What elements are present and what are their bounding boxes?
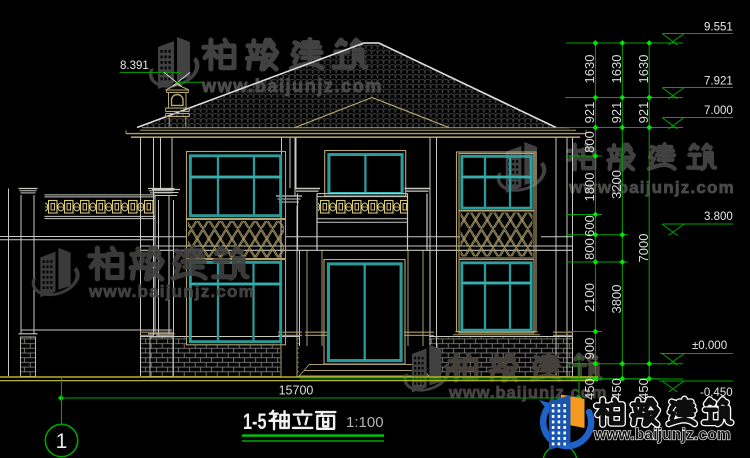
svg-text:1630: 1630 [582, 55, 597, 84]
svg-text:800: 800 [582, 131, 597, 153]
svg-text:921: 921 [636, 102, 651, 124]
svg-text:2100: 2100 [582, 283, 597, 312]
svg-text:1630: 1630 [609, 55, 624, 84]
svg-text:±0.000: ±0.000 [692, 340, 727, 352]
svg-text:15700: 15700 [279, 384, 314, 398]
svg-text:7000: 7000 [636, 234, 651, 263]
svg-text:900: 900 [582, 338, 597, 360]
svg-text:3200: 3200 [609, 170, 624, 199]
svg-text:8.391: 8.391 [120, 60, 149, 72]
svg-text:800: 800 [582, 238, 597, 260]
svg-text:9.551: 9.551 [704, 22, 733, 34]
svg-text:1-5: 1-5 [243, 409, 267, 434]
svg-text:1800: 1800 [582, 173, 597, 202]
svg-text:600: 600 [582, 215, 597, 237]
svg-text:3800: 3800 [609, 285, 624, 314]
svg-text:www.baijunjz.com: www.baijunjz.com [88, 282, 255, 301]
svg-text:1:100: 1:100 [346, 414, 384, 431]
svg-text:921: 921 [609, 102, 624, 124]
svg-text:-0.450: -0.450 [700, 387, 733, 399]
svg-text:1: 1 [56, 430, 68, 453]
svg-text:www.baijunjz.com: www.baijunjz.com [593, 427, 731, 444]
svg-text:7.000: 7.000 [704, 105, 733, 117]
svg-text:1630: 1630 [636, 55, 651, 84]
svg-text:921: 921 [582, 102, 597, 124]
svg-text:450: 450 [582, 378, 597, 400]
svg-text:450: 450 [609, 378, 624, 400]
svg-text:3.800: 3.800 [704, 211, 733, 223]
svg-text:7.921: 7.921 [704, 76, 733, 88]
